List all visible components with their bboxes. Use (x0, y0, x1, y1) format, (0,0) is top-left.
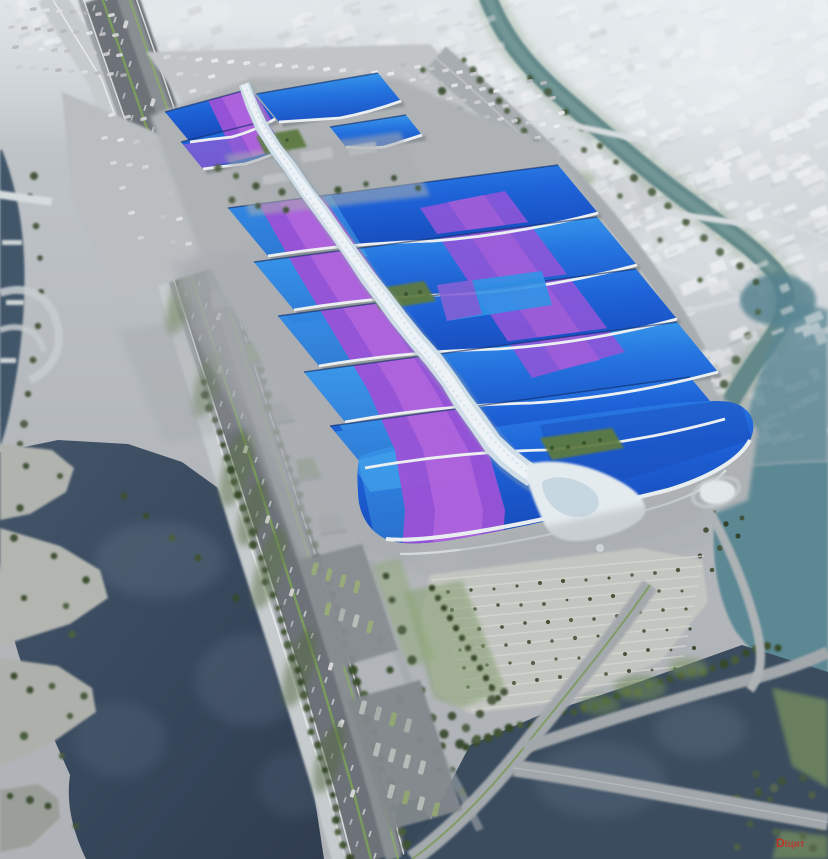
svg-text:DIцит: DIцит (776, 836, 805, 850)
